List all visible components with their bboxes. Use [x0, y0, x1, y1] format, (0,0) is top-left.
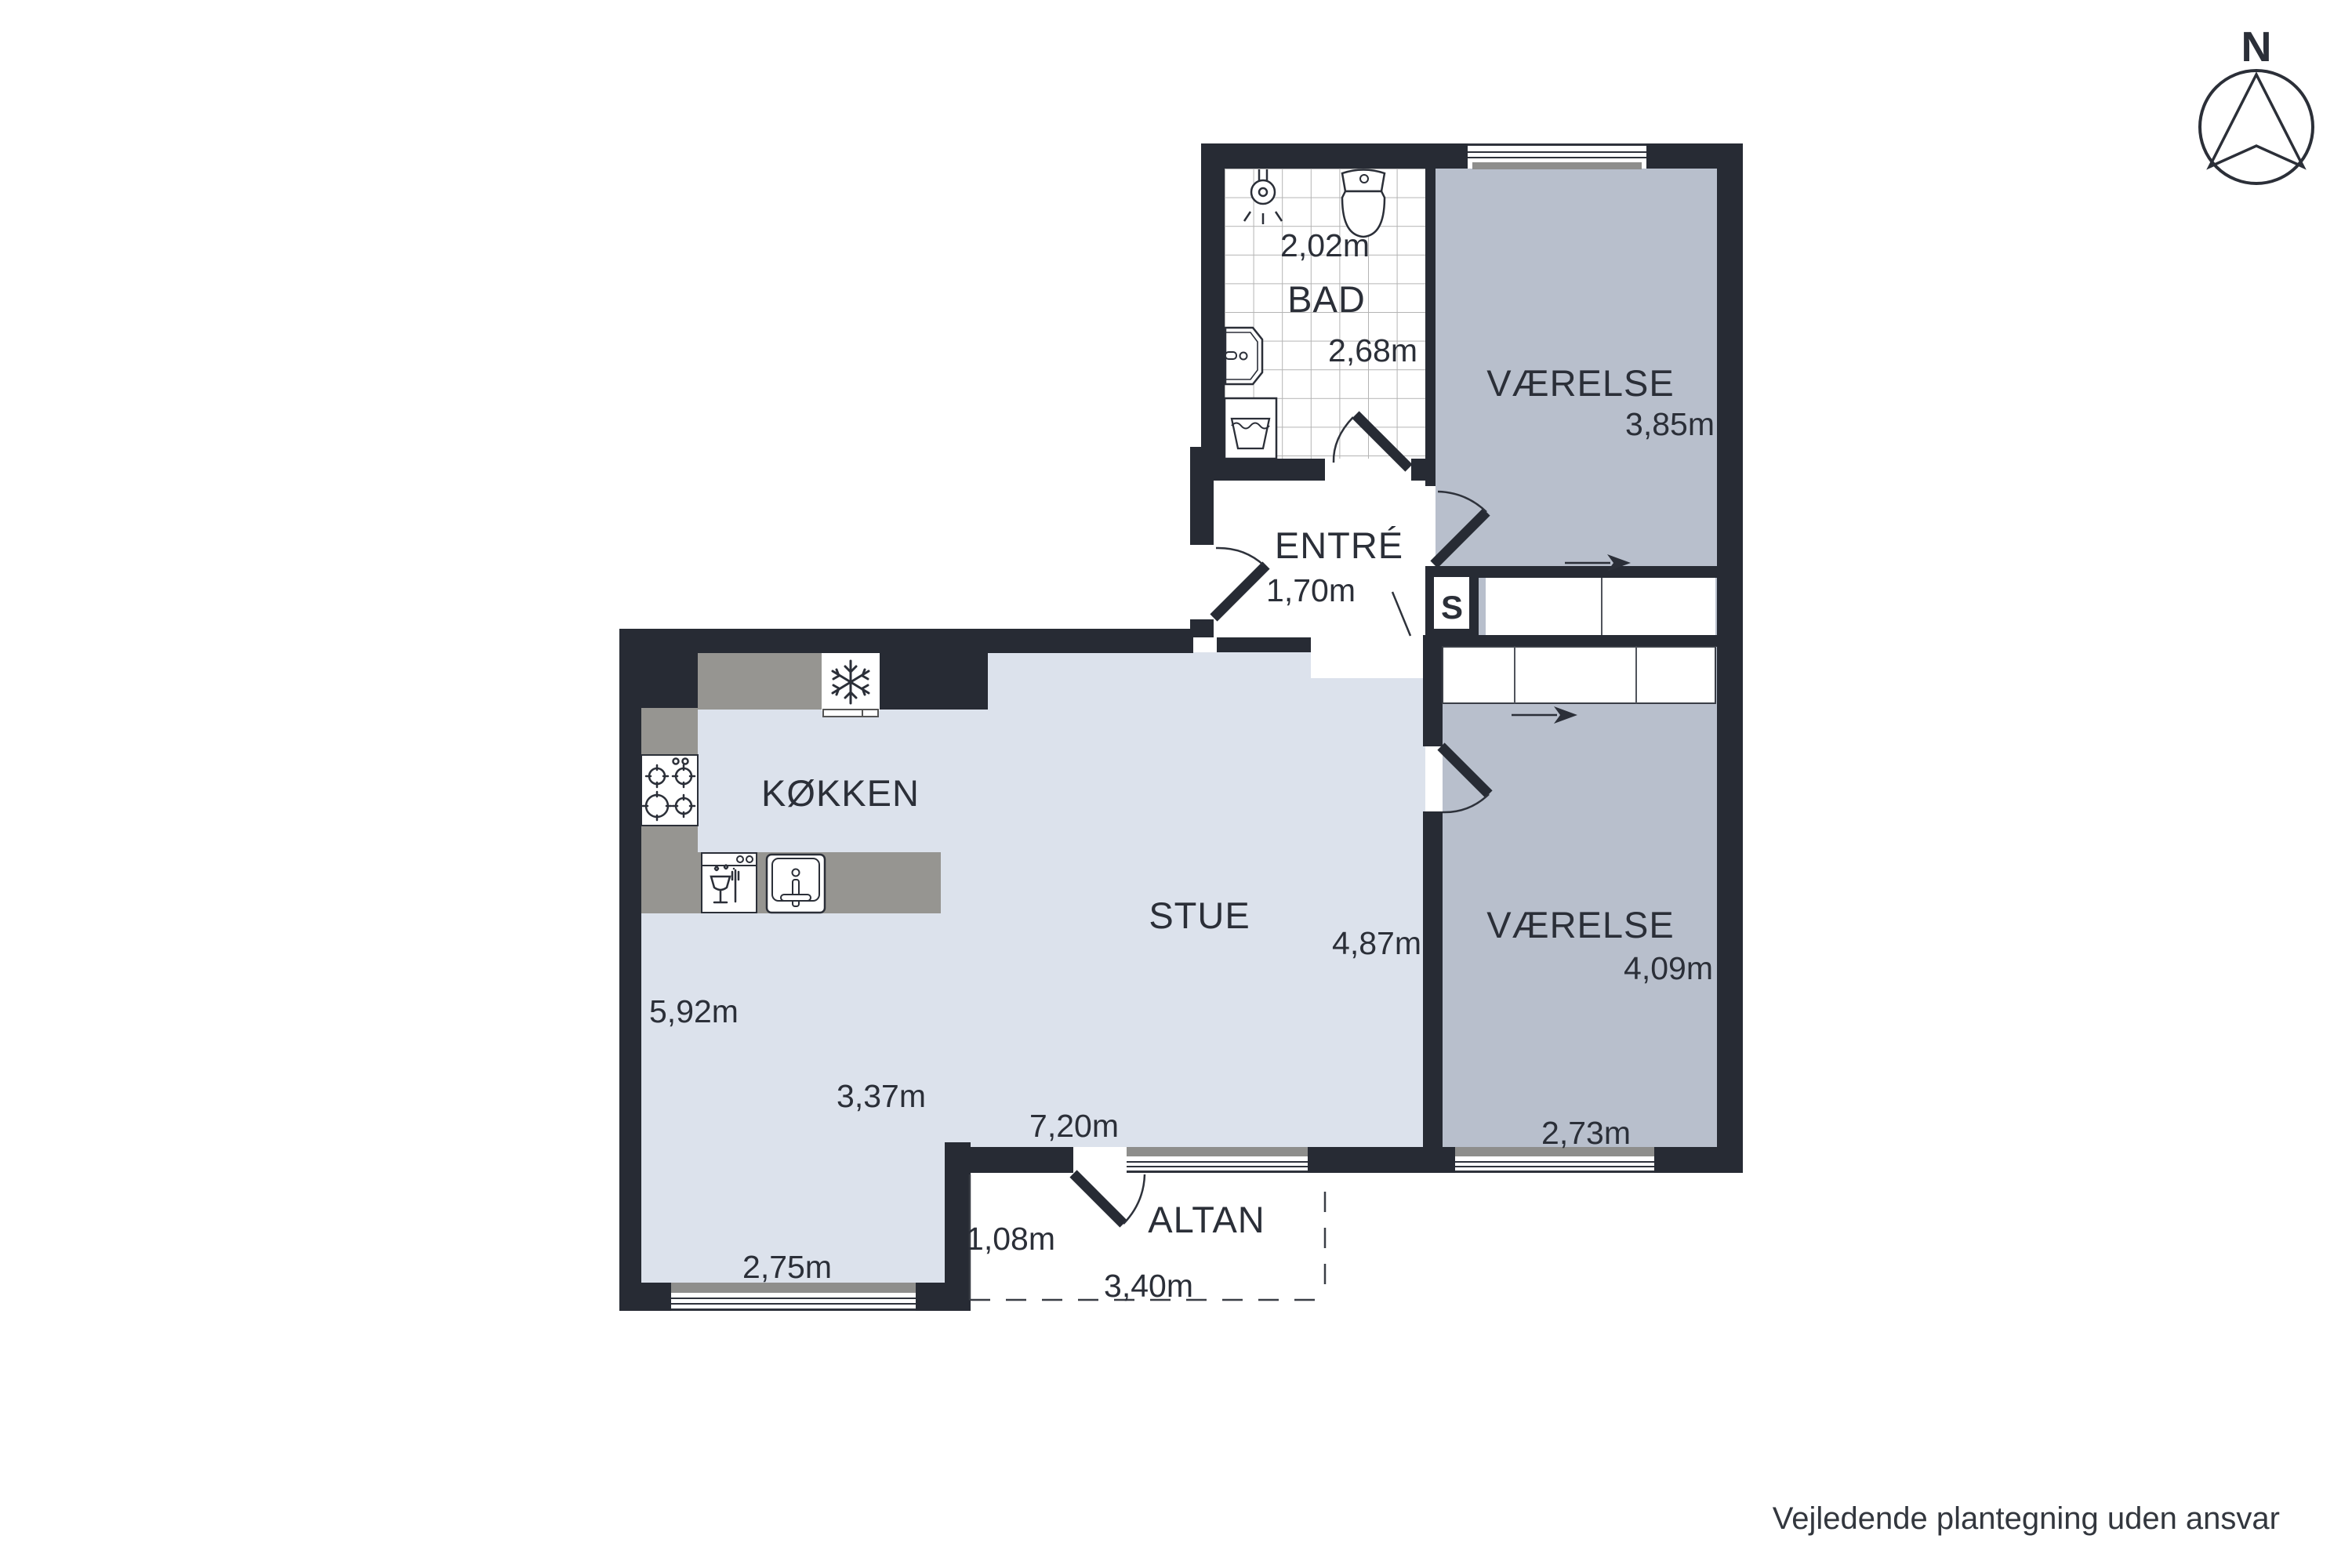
stue-depth: 4,87m: [1332, 925, 1421, 961]
vaerelse1-label: VÆRELSE: [1486, 362, 1674, 404]
koekken-window-width: 2,75m: [742, 1249, 832, 1285]
entre-label: ENTRÉ: [1275, 524, 1403, 566]
vaerelse1-depth: 3,85m: [1625, 406, 1715, 442]
vaerelse2-depth: 4,09m: [1624, 950, 1713, 986]
altan-width: 3,40m: [1104, 1268, 1193, 1304]
freezer-icon: [822, 653, 880, 717]
balcony-door: [1073, 1174, 1145, 1224]
koekken-label: KØKKEN: [761, 772, 920, 814]
stove-icon: [641, 755, 698, 826]
stue-width-part: 3,37m: [837, 1078, 926, 1114]
bad-label: BAD: [1287, 278, 1366, 320]
disclaimer-text: Vejledende plantegning uden ansvar: [1773, 1501, 2280, 1536]
stue-label: STUE: [1149, 895, 1250, 936]
vaerelse2-label: VÆRELSE: [1486, 904, 1674, 946]
wardrobe-vaerelse2: [1443, 647, 1715, 703]
stue-koekken-floor: [641, 652, 1425, 1283]
bad-depth: 2,68m: [1328, 332, 1417, 368]
floor-plan-canvas: N 2,02m BAD 2,68m VÆRELSE 3,85m ENTRÉ 1,…: [0, 0, 2352, 1568]
bath-sink-icon: [1225, 328, 1262, 384]
dishwasher-icon: [702, 853, 757, 913]
vaerelse2-window-width: 2,73m: [1541, 1115, 1631, 1151]
closet-label: S: [1441, 589, 1463, 626]
window-koekken: [671, 1283, 916, 1311]
altan-label: ALTAN: [1148, 1199, 1265, 1240]
washing-machine-icon: [1225, 398, 1276, 459]
north-arrow-icon: [2200, 71, 2313, 183]
floor-plan-page: N 2,02m BAD 2,68m VÆRELSE 3,85m ENTRÉ 1,…: [0, 0, 2352, 1568]
entre-width: 1,70m: [1266, 572, 1356, 608]
bad-width: 2,02m: [1280, 227, 1370, 263]
stue-width-total: 7,20m: [1029, 1108, 1119, 1144]
window-stue: [1127, 1147, 1308, 1173]
counter-top: [696, 653, 823, 710]
window-vaerelse1: [1468, 143, 1646, 169]
kitchen-sink-icon: [767, 855, 825, 913]
wardrobe-vaerelse1: [1486, 578, 1715, 635]
koekken-depth: 5,92m: [649, 993, 739, 1029]
altan-door-width: 1,08m: [966, 1221, 1055, 1257]
vaerelse2-floor: [1443, 644, 1717, 1149]
compass-label: N: [2241, 24, 2272, 71]
